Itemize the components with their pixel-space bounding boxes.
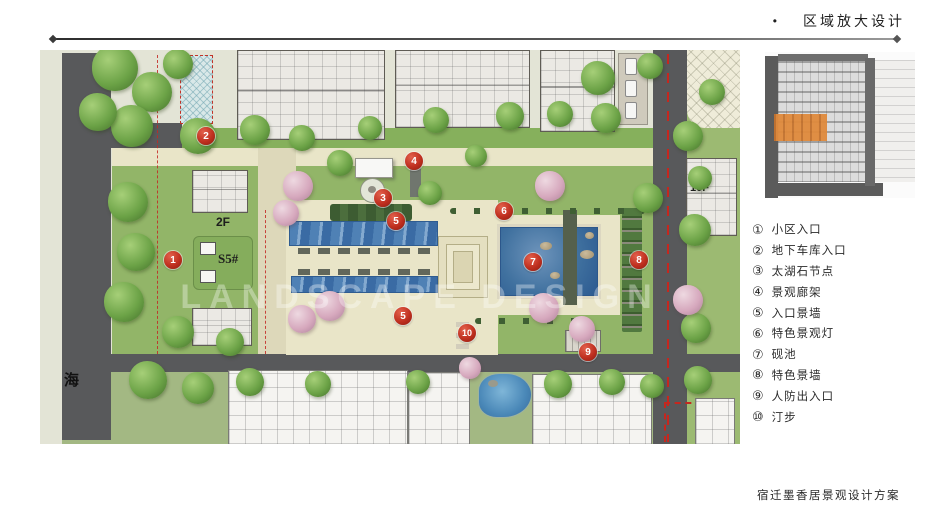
building-2f-label: 2F bbox=[216, 215, 230, 229]
marker-5b: 5 bbox=[394, 307, 412, 325]
building-2f-footprint bbox=[192, 170, 248, 213]
legend-item: ⑧特色景墙 bbox=[752, 365, 928, 386]
legend-item: ③太湖石节点 bbox=[752, 261, 928, 282]
tree bbox=[547, 101, 573, 127]
legend-label: 景观廊架 bbox=[772, 284, 822, 300]
legend-number-icon: ⑩ bbox=[752, 410, 764, 423]
legend-item: ⑥特色景观灯 bbox=[752, 323, 928, 344]
legend-label: 砚池 bbox=[772, 346, 797, 362]
tree bbox=[679, 214, 711, 246]
marker-9: 9 bbox=[579, 343, 597, 361]
marker-6: 6 bbox=[495, 202, 513, 220]
legend-item: ⑦砚池 bbox=[752, 344, 928, 365]
legend-number-icon: ⑦ bbox=[752, 348, 764, 361]
legend: ①小区入口 ②地下车库入口 ③太湖石节点 ④景观廊架 ⑤入口景墙 ⑥特色景观灯 … bbox=[752, 219, 928, 427]
building-s5-label: S5# bbox=[218, 251, 238, 267]
legend-number-icon: ⑨ bbox=[752, 389, 764, 402]
legend-number-icon: ⑧ bbox=[752, 368, 764, 381]
site-plan: 2F S5# bbox=[40, 50, 740, 444]
locator-road bbox=[865, 58, 875, 186]
shrub-row-north bbox=[450, 208, 645, 214]
tree bbox=[688, 166, 712, 190]
marker-3: 3 bbox=[374, 189, 392, 207]
watermark: LANDSCAPE DESIGN bbox=[140, 278, 700, 317]
tree bbox=[684, 366, 712, 394]
project-title: 宿迁墨香居景观设计方案 bbox=[757, 487, 900, 503]
tree bbox=[358, 116, 382, 140]
legend-number-icon: ② bbox=[752, 244, 764, 257]
marker-7: 7 bbox=[524, 253, 542, 271]
title-rule bbox=[53, 38, 897, 40]
marker-4: 4 bbox=[405, 152, 423, 170]
tree bbox=[289, 125, 315, 151]
tree bbox=[92, 50, 138, 91]
tree bbox=[117, 233, 155, 271]
tree bbox=[599, 369, 625, 395]
tree bbox=[591, 103, 621, 133]
tree bbox=[162, 316, 194, 348]
blossom-tree bbox=[459, 357, 481, 379]
legend-label: 人防出入口 bbox=[772, 388, 835, 404]
marker-1: 1 bbox=[164, 251, 182, 269]
tree bbox=[496, 102, 524, 130]
marker-10: 10 bbox=[458, 324, 476, 342]
legend-number-icon: ⑥ bbox=[752, 327, 764, 340]
pool-rock bbox=[488, 380, 498, 387]
legend-label: 入口景墙 bbox=[772, 305, 822, 321]
tree bbox=[406, 370, 430, 394]
tree bbox=[240, 115, 270, 145]
blossom-tree bbox=[535, 171, 565, 201]
tree bbox=[104, 282, 144, 322]
legend-item: ⑤入口景墙 bbox=[752, 302, 928, 323]
legend-item: ①小区入口 bbox=[752, 219, 928, 240]
legend-label: 小区入口 bbox=[772, 221, 822, 237]
tree bbox=[111, 105, 153, 147]
tree bbox=[182, 372, 214, 404]
tree bbox=[236, 368, 264, 396]
presentation-page: • 区域放大设计 2F bbox=[0, 0, 934, 526]
pool-rock bbox=[580, 250, 594, 259]
marker-8: 8 bbox=[630, 251, 648, 269]
car bbox=[625, 102, 637, 119]
legend-label: 特色景观灯 bbox=[772, 325, 835, 341]
blossom-tree bbox=[569, 316, 595, 342]
tree bbox=[423, 107, 449, 133]
tree bbox=[637, 53, 663, 79]
car bbox=[625, 58, 637, 75]
road-name-label: 海 bbox=[60, 372, 81, 387]
tree bbox=[418, 181, 442, 205]
locator-buildings-faded bbox=[875, 60, 915, 182]
locator-map bbox=[765, 52, 915, 198]
legend-number-icon: ③ bbox=[752, 264, 764, 277]
car bbox=[625, 80, 637, 97]
tree bbox=[216, 328, 244, 356]
tree bbox=[129, 361, 167, 399]
tree bbox=[581, 61, 615, 95]
blossom-tree bbox=[283, 171, 313, 201]
water-channel-upper bbox=[289, 221, 438, 246]
paver-row bbox=[298, 269, 438, 275]
paver-row bbox=[298, 248, 438, 254]
legend-label: 地下车库入口 bbox=[772, 242, 847, 258]
locator-highlight bbox=[774, 114, 827, 141]
legend-number-icon: ① bbox=[752, 223, 764, 236]
marker-5a: 5 bbox=[387, 212, 405, 230]
tree bbox=[163, 50, 193, 79]
tree bbox=[673, 121, 703, 151]
tree bbox=[108, 182, 148, 222]
legend-item: ⑩汀步 bbox=[752, 406, 928, 427]
marker-2: 2 bbox=[197, 127, 215, 145]
legend-number-icon: ④ bbox=[752, 285, 764, 298]
building-s5-unit bbox=[200, 242, 216, 255]
tree bbox=[633, 183, 663, 213]
legend-label: 特色景墙 bbox=[772, 367, 822, 383]
legend-label: 汀步 bbox=[772, 409, 797, 425]
building-footprint-southeast bbox=[695, 398, 735, 444]
legend-label: 太湖石节点 bbox=[772, 263, 835, 279]
tree bbox=[327, 150, 353, 176]
tree bbox=[305, 371, 331, 397]
legend-item: ②地下车库入口 bbox=[752, 240, 928, 261]
pool-rock bbox=[585, 232, 594, 239]
pool-rock bbox=[540, 242, 552, 250]
tree bbox=[465, 145, 487, 167]
tree bbox=[79, 93, 117, 131]
tree bbox=[681, 313, 711, 343]
pergola-roof bbox=[355, 158, 393, 178]
legend-number-icon: ⑤ bbox=[752, 306, 764, 319]
page-title-text: 区域放大设计 bbox=[803, 11, 905, 31]
tree bbox=[699, 79, 725, 105]
road-centerline-red bbox=[667, 54, 669, 442]
page-title: • 区域放大设计 bbox=[773, 11, 905, 31]
legend-item: ④景观廊架 bbox=[752, 281, 928, 302]
tree bbox=[640, 374, 664, 398]
legend-item: ⑨人防出入口 bbox=[752, 385, 928, 406]
tree bbox=[544, 370, 572, 398]
blossom-tree bbox=[273, 200, 299, 226]
title-bullet-icon: • bbox=[773, 14, 777, 28]
